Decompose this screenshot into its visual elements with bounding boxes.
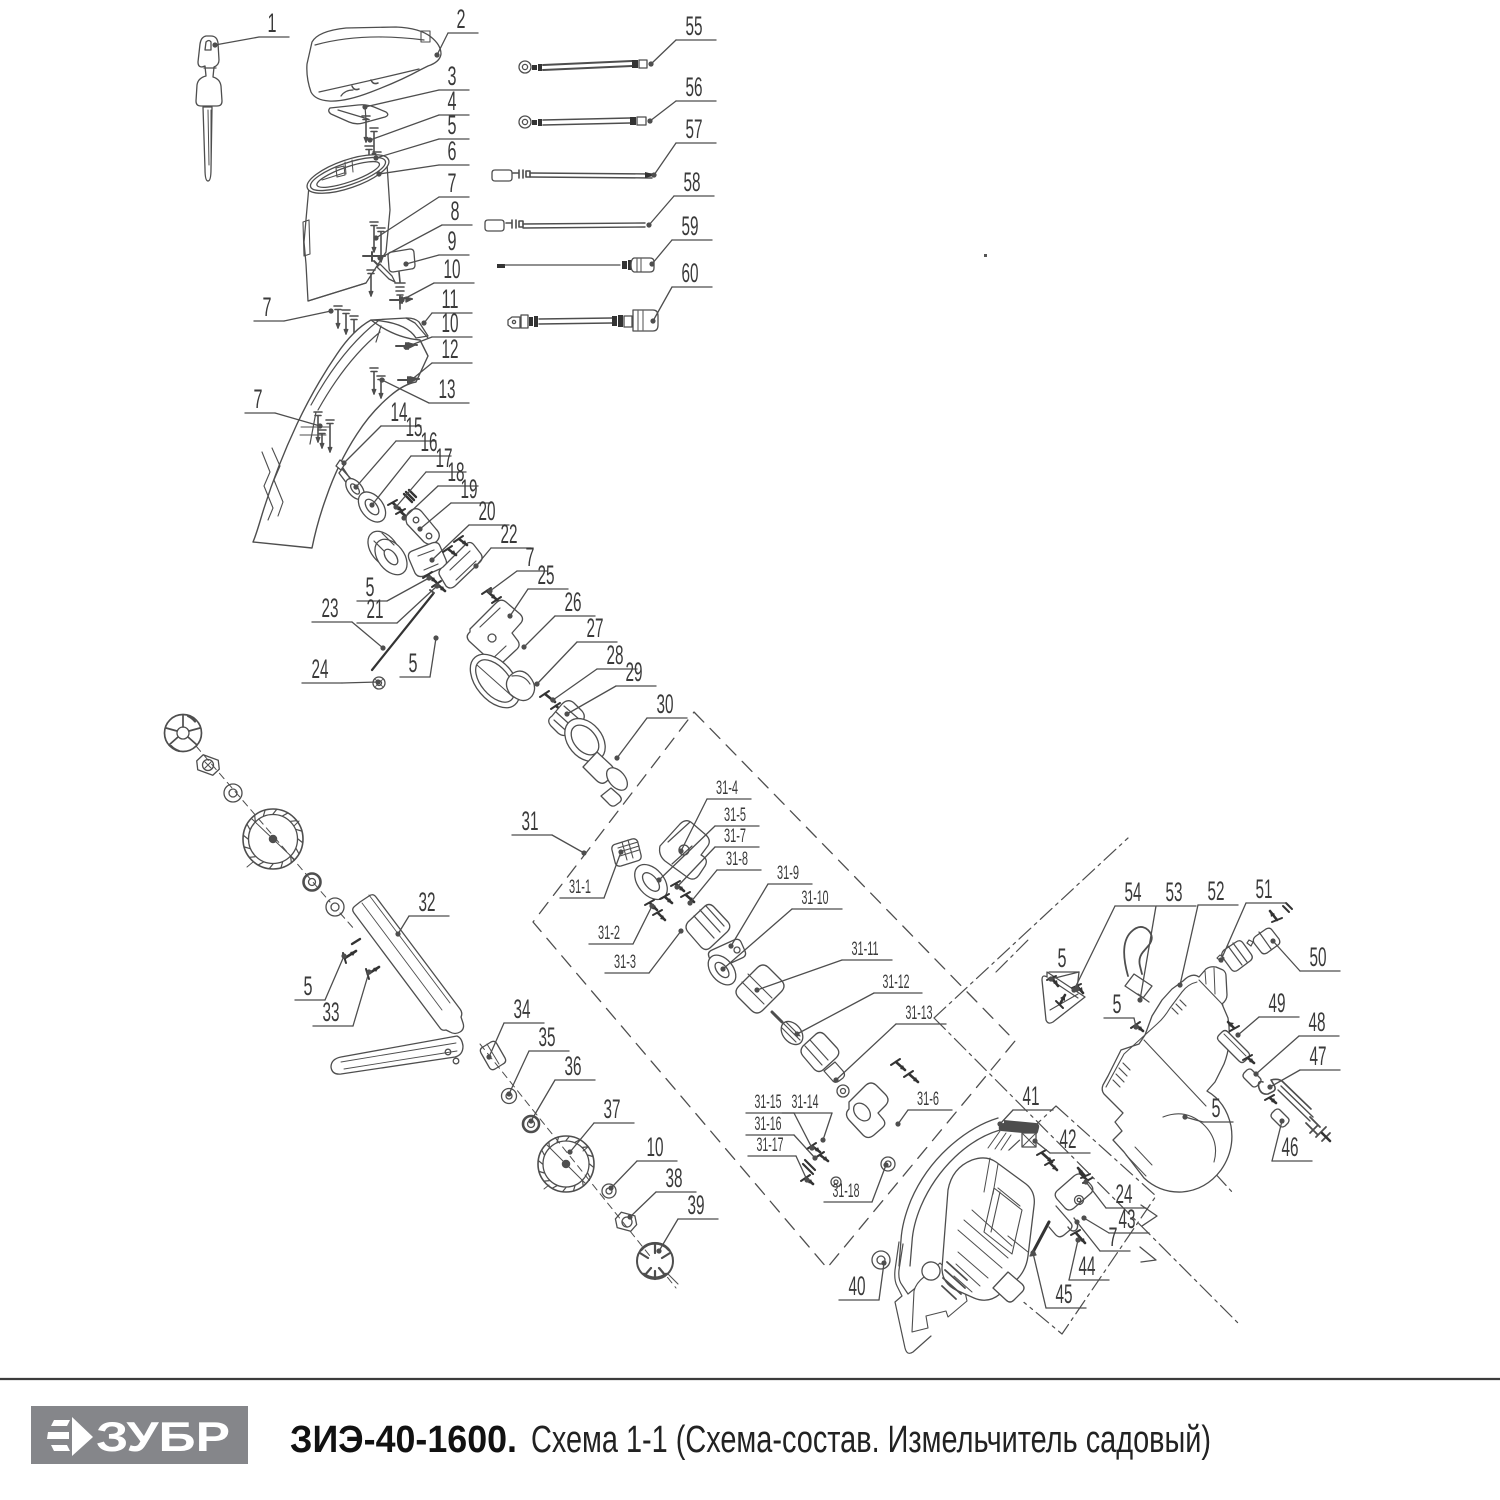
svg-text:23: 23	[322, 593, 339, 623]
svg-text:46: 46	[1282, 1132, 1299, 1162]
svg-text:36: 36	[565, 1051, 582, 1081]
svg-text:37: 37	[604, 1094, 621, 1124]
svg-text:31-7: 31-7	[724, 826, 746, 847]
svg-text:31-3: 31-3	[614, 952, 636, 973]
svg-text:22: 22	[501, 519, 518, 549]
svg-text:31-1: 31-1	[569, 877, 591, 898]
svg-text:31-16: 31-16	[755, 1114, 782, 1135]
svg-text:31-14: 31-14	[792, 1092, 819, 1113]
svg-text:31-12: 31-12	[883, 972, 910, 993]
svg-text:60: 60	[682, 258, 699, 288]
svg-text:26: 26	[565, 587, 582, 617]
svg-text:31-9: 31-9	[777, 863, 799, 884]
svg-text:5: 5	[409, 648, 418, 678]
svg-text:19: 19	[461, 474, 478, 504]
svg-text:30: 30	[657, 689, 674, 719]
svg-text:39: 39	[688, 1190, 705, 1220]
svg-text:51: 51	[1256, 874, 1273, 904]
svg-text:5: 5	[1212, 1093, 1221, 1123]
svg-text:2: 2	[457, 4, 466, 34]
svg-text:56: 56	[686, 72, 703, 102]
svg-text:50: 50	[1310, 942, 1327, 972]
svg-text:8: 8	[451, 196, 460, 226]
svg-text:31-18: 31-18	[833, 1181, 860, 1202]
svg-text:31-17: 31-17	[757, 1135, 784, 1156]
svg-text:58: 58	[684, 167, 701, 197]
svg-text:9: 9	[448, 226, 457, 256]
svg-text:49: 49	[1269, 988, 1286, 1018]
svg-text:20: 20	[479, 496, 496, 526]
svg-text:27: 27	[587, 613, 604, 643]
svg-text:33: 33	[323, 997, 340, 1027]
svg-text:34: 34	[514, 994, 531, 1024]
svg-text:7: 7	[448, 168, 457, 198]
svg-text:6: 6	[448, 136, 457, 166]
svg-text:5: 5	[1113, 989, 1122, 1019]
svg-text:5: 5	[304, 971, 313, 1001]
svg-text:44: 44	[1079, 1251, 1096, 1281]
svg-text:31-6: 31-6	[917, 1089, 939, 1110]
svg-text:52: 52	[1208, 876, 1225, 906]
svg-text:38: 38	[666, 1163, 683, 1193]
svg-text:31-8: 31-8	[726, 849, 748, 870]
svg-text:29: 29	[626, 657, 643, 687]
svg-text:55: 55	[686, 11, 703, 41]
svg-text:12: 12	[442, 334, 459, 364]
svg-text:31-10: 31-10	[802, 888, 829, 909]
svg-text:31-13: 31-13	[906, 1003, 933, 1024]
svg-text:28: 28	[607, 640, 624, 670]
svg-text:ЗИЭ-40-1600.: ЗИЭ-40-1600.	[290, 1419, 517, 1461]
svg-text:21: 21	[367, 594, 384, 624]
svg-text:5: 5	[1058, 943, 1067, 973]
svg-text:7: 7	[526, 542, 535, 572]
svg-text:47: 47	[1310, 1041, 1327, 1071]
svg-text:41: 41	[1023, 1081, 1040, 1111]
svg-text:40: 40	[849, 1271, 866, 1301]
svg-text:45: 45	[1056, 1279, 1073, 1309]
svg-text:31-11: 31-11	[852, 939, 879, 960]
svg-text:31-15: 31-15	[755, 1092, 782, 1113]
svg-text:48: 48	[1309, 1007, 1326, 1037]
svg-text:31: 31	[522, 806, 539, 836]
svg-text:10: 10	[647, 1132, 664, 1162]
svg-text:53: 53	[1166, 877, 1183, 907]
svg-text:24: 24	[312, 654, 329, 684]
svg-text:Схема 1-1 (Схема-состав. Измел: Схема 1-1 (Схема-состав. Измельчитель са…	[531, 1419, 1211, 1461]
svg-text:1: 1	[268, 8, 277, 38]
svg-text:57: 57	[686, 114, 703, 144]
svg-text:43: 43	[1119, 1204, 1136, 1234]
svg-text:31-5: 31-5	[724, 805, 746, 826]
svg-text:13: 13	[439, 374, 456, 404]
svg-text:32: 32	[419, 887, 436, 917]
svg-text:10: 10	[444, 254, 461, 284]
svg-text:35: 35	[539, 1022, 556, 1052]
svg-text:42: 42	[1060, 1124, 1077, 1154]
svg-text:31-4: 31-4	[716, 778, 738, 799]
svg-text:7: 7	[1109, 1222, 1118, 1252]
svg-text:7: 7	[254, 384, 263, 414]
svg-text:54: 54	[1125, 877, 1142, 907]
svg-text:ЗУБР: ЗУБР	[96, 1413, 230, 1460]
svg-text:25: 25	[538, 560, 555, 590]
svg-text:31-2: 31-2	[598, 923, 620, 944]
svg-text:7: 7	[263, 292, 272, 322]
svg-text:59: 59	[682, 211, 699, 241]
